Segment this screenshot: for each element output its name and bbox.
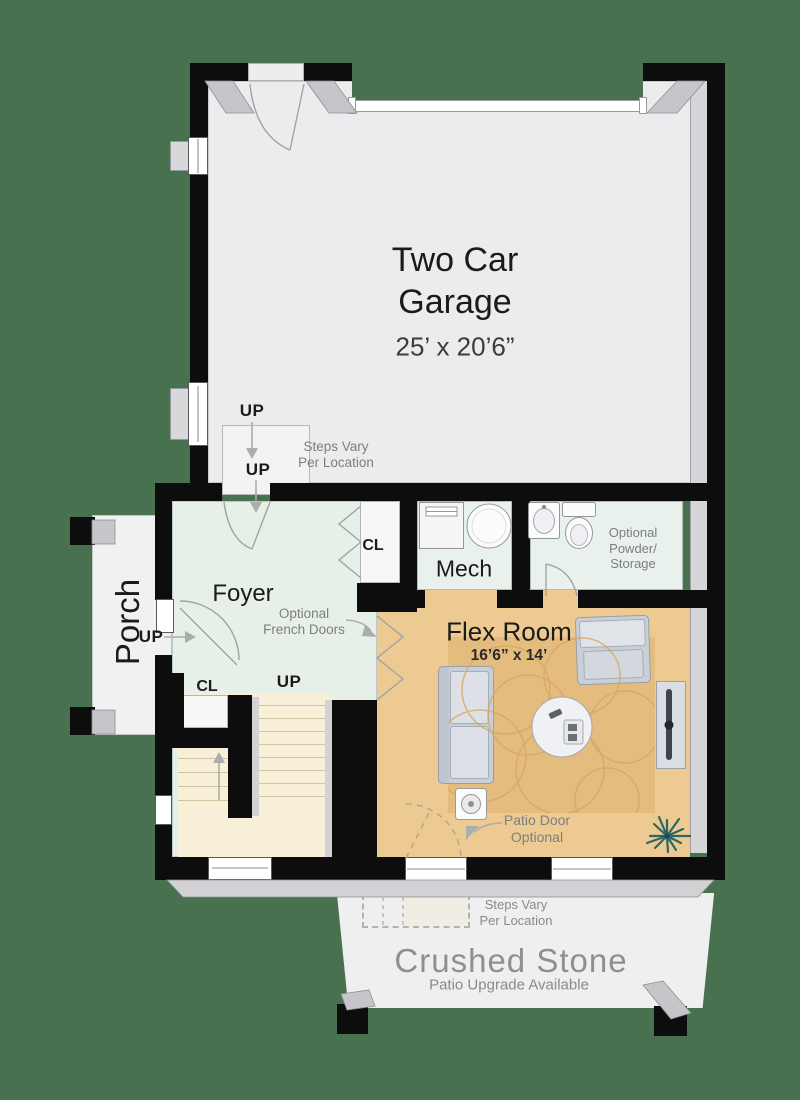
wall-garage-left-b [190,175,208,382]
garage-steps-up-bottom-label: UP [246,460,271,480]
stair-flight-up [252,693,332,803]
patio-door-note-line1: Patio Door [504,812,570,829]
french-doors-note-line2: French Doors [263,622,345,638]
wall-below-mech-a [400,590,425,608]
garage-label: Two Car Garage [365,239,545,323]
stoop-flex-right [555,882,609,894]
powder-note-line2: Powder/ [609,541,657,557]
garage-door-post-left [348,97,356,114]
garage-door-threshold [248,63,304,81]
garage-door-post-right [639,97,647,114]
crushed-stone-label: Crushed Stone [394,942,627,980]
window-bottom-flex-right [551,857,613,883]
wall-right [707,63,725,880]
porch-post-top [70,517,95,545]
window-bottom-flex-left [405,857,467,883]
flex-room-dims-label: 16’6” x 14’ [471,647,548,665]
garage-steps-note-line2: Per Location [298,455,374,471]
patio-door-note: Patio Door Optional [504,812,570,846]
right-wall-bevel [690,81,707,853]
foyer-closet-label: CL [362,537,383,555]
garage-dims-label: 25’ x 20’6” [396,332,515,363]
patio-door-note-line2: Optional [504,829,570,846]
wall-below-mech-b [497,590,543,608]
window-sill-garage-1 [170,141,190,171]
patio-upgrade-label: Patio Upgrade Available [429,977,589,994]
floor-plan: Two Car Garage 25’ x 20’6” UP UP Steps V… [0,0,800,1100]
stairs-up-label: UP [277,672,302,692]
mech-label: Mech [436,556,492,583]
porch-label: Porch [109,579,147,665]
stair-flight-lower [178,745,228,803]
window-garage-left-1 [188,137,208,175]
flex-room-label: Flex Room [446,617,572,648]
powder-note: Optional Powder/ Storage [609,525,657,572]
stairs-closet-label: CL [196,678,217,696]
french-doors-note-line1: Optional [263,606,345,622]
powder-note-line1: Optional [609,525,657,541]
stone-steps-note-line2: Per Location [480,913,553,929]
window-sill-garage-2 [170,388,190,440]
sofa [438,666,494,784]
wall-foyer-left-lower [155,655,172,880]
garage-steps-note-line1: Steps Vary [298,439,374,455]
wall-mid-right [270,483,725,501]
french-doors-note: Optional French Doors [263,606,345,638]
garage-door-panel [352,100,643,112]
foyer-label: Foyer [212,580,273,608]
window-bottom-stairs [208,857,272,880]
loveseat [575,615,651,686]
wall-garage-left-a [190,63,208,137]
wall-closet-stub [172,673,184,728]
wall-mid-left [155,483,222,501]
window-stair-left [155,795,172,825]
stoop-flex-left [409,882,463,894]
wall-mech-divider [512,501,530,590]
stone-steps-note: Steps Vary Per Location [480,897,553,928]
stone-steps-patch [404,896,468,926]
stone-post-left [337,1004,368,1034]
stone-steps-note-line1: Steps Vary [480,897,553,913]
porch-post-bottom [70,707,95,735]
wall-stair-flex [332,700,377,860]
powder-note-line3: Storage [609,556,657,572]
garage-door-exterior [352,63,643,101]
garage-steps-up-top-label: UP [240,401,265,421]
wall-stair-center [228,695,252,818]
stone-post-right [654,1006,687,1036]
garage-steps-note: Steps Vary Per Location [298,439,374,471]
window-garage-left-2 [188,382,208,446]
wall-garage-top-mid [304,63,352,81]
wall-below-stair-closet [160,728,230,748]
wall-foyer-left-upper [155,501,172,600]
wall-below-powder [578,590,707,608]
powder-floor [530,501,683,590]
